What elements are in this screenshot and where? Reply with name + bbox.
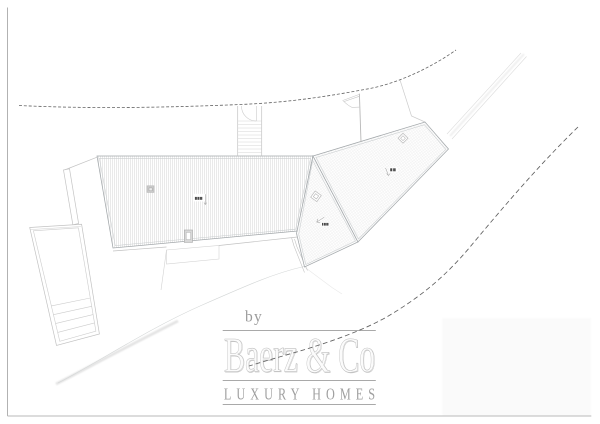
svg-text:LUXURY HOMES: LUXURY HOMES — [224, 386, 380, 404]
svg-text:by: by — [245, 309, 263, 326]
svg-text:Baerz & Co: Baerz & Co — [224, 327, 375, 382]
